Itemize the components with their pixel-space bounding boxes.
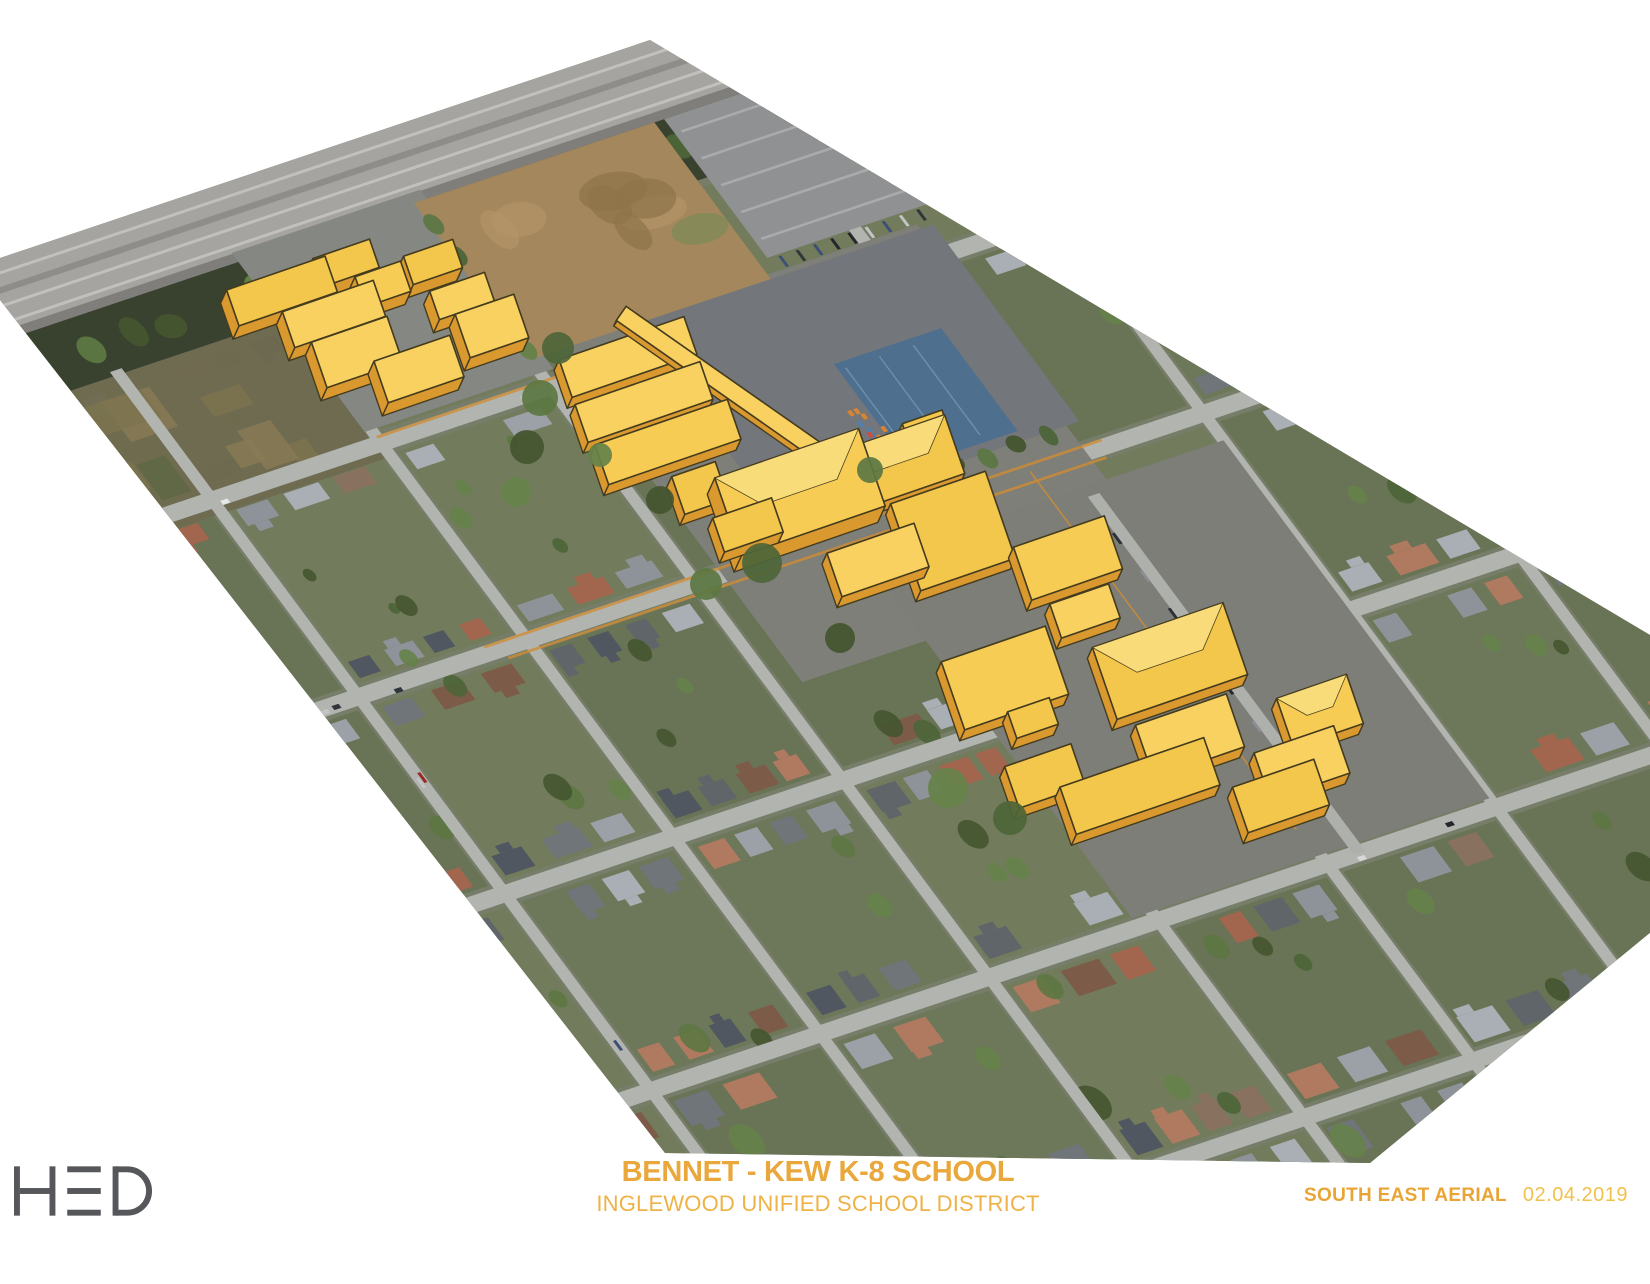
hed-logo (14, 1166, 154, 1221)
project-subtitle: INGLEWOOD UNIFIED SCHOOL DISTRICT (418, 1192, 1218, 1216)
view-label: SOUTH EAST AERIAL (1304, 1185, 1507, 1206)
project-title: BENNET - KEW K-8 SCHOOL (418, 1157, 1218, 1189)
presentation-slide: BENNET - KEW K-8 SCHOOL INGLEWOOD UNIFIE… (0, 0, 1650, 1284)
view-date: 02.04.2019 (1523, 1184, 1628, 1206)
aerial-rendering (0, 0, 1650, 1284)
aerial-photo (0, 0, 1650, 1284)
neighborhood-and-campus (0, 0, 1650, 1284)
hed-logo-mark (14, 1166, 154, 1216)
title-block: BENNET - KEW K-8 SCHOOL INGLEWOOD UNIFIE… (418, 1157, 1218, 1216)
view-info: SOUTH EAST AERIAL02.04.2019 (1304, 1184, 1628, 1207)
